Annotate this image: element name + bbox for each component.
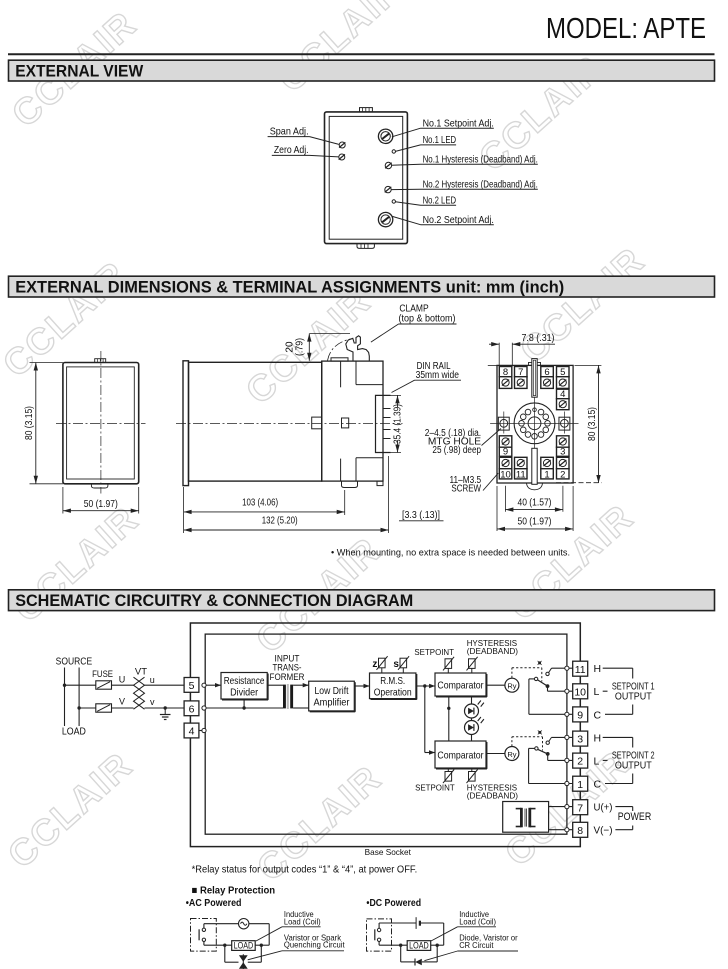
svg-text:U: U xyxy=(119,674,126,684)
svg-text:Load (Coil): Load (Coil) xyxy=(459,917,496,927)
svg-text:(.79): (.79) xyxy=(295,338,306,356)
svg-text:Base Socket: Base Socket xyxy=(365,847,412,857)
svg-text:Ry: Ry xyxy=(507,682,516,691)
svg-text:Comparator: Comparator xyxy=(437,679,484,691)
svg-text:11: 11 xyxy=(575,664,586,676)
svg-text:v: v xyxy=(150,697,155,707)
svg-text:EXTERNAL VIEW: EXTERNAL VIEW xyxy=(15,63,143,81)
svg-text:80 (3.15): 80 (3.15) xyxy=(23,406,35,440)
svg-text:•DC Powered: •DC Powered xyxy=(366,897,421,909)
svg-text:Amplifier: Amplifier xyxy=(314,697,350,709)
svg-text:35.4 (1.39): 35.4 (1.39) xyxy=(392,404,403,444)
svg-text:6: 6 xyxy=(189,703,195,715)
svg-text:1: 1 xyxy=(544,469,549,480)
svg-text:7: 7 xyxy=(577,802,583,814)
svg-text:8: 8 xyxy=(577,825,583,837)
svg-text:9: 9 xyxy=(577,710,583,722)
svg-text:Low Drift: Low Drift xyxy=(315,685,349,697)
svg-text:V(−): V(−) xyxy=(594,825,613,837)
svg-text:No.2 LED: No.2 LED xyxy=(423,194,457,206)
svg-text:Resistance: Resistance xyxy=(224,675,265,687)
svg-text:132 (5.20): 132 (5.20) xyxy=(262,515,298,527)
svg-text:Quenching Circuit: Quenching Circuit xyxy=(284,940,345,950)
svg-text:Ry: Ry xyxy=(507,750,516,759)
svg-text:Load (Coil): Load (Coil) xyxy=(284,917,321,927)
svg-text:L: L xyxy=(594,686,600,698)
svg-text:U(+): U(+) xyxy=(594,802,613,814)
svg-text:• When mounting, no extra spac: • When mounting, no extra space is neede… xyxy=(331,548,570,559)
svg-text:EXTERNAL DIMENSIONS & TERMINAL: EXTERNAL DIMENSIONS & TERMINAL ASSIGNMEN… xyxy=(15,279,564,297)
svg-text:LOAD: LOAD xyxy=(62,727,86,738)
svg-text:■ Relay Protection: ■ Relay Protection xyxy=(192,885,276,897)
svg-text:VT: VT xyxy=(135,667,147,678)
svg-text:CCLAIR: CCLAIR xyxy=(512,239,652,371)
svg-text:103 (4.06): 103 (4.06) xyxy=(242,496,278,508)
svg-text:SETPOINT: SETPOINT xyxy=(414,648,454,657)
svg-text:s: s xyxy=(393,659,399,670)
svg-text:(DEADBAND): (DEADBAND) xyxy=(467,647,519,656)
svg-text:SETPOINT: SETPOINT xyxy=(415,784,455,793)
svg-text:Zero Adj.: Zero Adj. xyxy=(274,144,309,156)
svg-text:35mm wide: 35mm wide xyxy=(416,370,460,381)
svg-text:H: H xyxy=(594,732,602,744)
svg-text:5: 5 xyxy=(189,680,195,692)
svg-text:Operation: Operation xyxy=(374,686,412,698)
svg-text:50 (1.97): 50 (1.97) xyxy=(518,515,552,527)
svg-text:2: 2 xyxy=(577,756,583,768)
svg-text:SOURCE: SOURCE xyxy=(56,657,93,668)
svg-text:FUSE: FUSE xyxy=(92,669,113,679)
svg-text:Comparator: Comparator xyxy=(437,749,484,761)
svg-text:CR Circuit: CR Circuit xyxy=(459,940,494,950)
svg-text:V: V xyxy=(119,697,125,707)
svg-text:R.M.S.: R.M.S. xyxy=(380,675,405,687)
svg-text:C: C xyxy=(594,779,602,791)
svg-text:CCLAIR: CCLAIR xyxy=(270,0,410,100)
svg-text:2: 2 xyxy=(560,469,565,480)
svg-text:1: 1 xyxy=(577,779,583,791)
svg-text:50 (1.97): 50 (1.97) xyxy=(84,498,118,510)
svg-text:No.2 Setpoint Adj.: No.2 Setpoint Adj. xyxy=(423,214,494,226)
svg-text:80 (3.15): 80 (3.15) xyxy=(586,407,598,441)
svg-text:C: C xyxy=(594,709,602,721)
svg-text:OUTPUT: OUTPUT xyxy=(615,759,652,771)
svg-text:(DEADBAND): (DEADBAND) xyxy=(467,791,519,800)
svg-text:Span Adj.: Span Adj. xyxy=(270,125,309,137)
svg-text:7.8 (.31): 7.8 (.31) xyxy=(522,332,555,344)
svg-text:*Relay status for output codes: *Relay status for output codes “1” & “4”… xyxy=(192,864,418,875)
svg-text:LOAD: LOAD xyxy=(234,941,254,951)
svg-text:u: u xyxy=(150,675,155,685)
svg-text:No.1 LED: No.1 LED xyxy=(423,134,457,146)
svg-text:SCREW: SCREW xyxy=(451,484,481,495)
svg-text:40 (1.57): 40 (1.57) xyxy=(518,496,552,508)
svg-text:3: 3 xyxy=(560,447,565,458)
svg-text:z: z xyxy=(372,659,377,670)
svg-text:OUTPUT: OUTPUT xyxy=(615,690,652,702)
svg-text:POWER: POWER xyxy=(618,811,652,823)
svg-text:11: 11 xyxy=(516,469,526,480)
svg-text:3: 3 xyxy=(577,734,583,746)
svg-text:10: 10 xyxy=(500,469,511,480)
svg-text:4: 4 xyxy=(189,726,195,738)
svg-text:CCLAIR: CCLAIR xyxy=(0,744,140,876)
svg-text:No.1 Hysteresis (Deadband) Adj: No.1 Hysteresis (Deadband) Adj. xyxy=(423,153,538,165)
svg-text:FORMER: FORMER xyxy=(270,672,305,682)
svg-text:H: H xyxy=(594,663,602,675)
svg-text:LOAD: LOAD xyxy=(409,941,429,951)
svg-text:25 (.98) deep: 25 (.98) deep xyxy=(432,445,481,456)
svg-text:MODEL: APTE: MODEL: APTE xyxy=(546,13,706,45)
svg-text:No.1 Setpoint Adj.: No.1 Setpoint Adj. xyxy=(423,117,494,129)
svg-text:•AC Powered: •AC Powered xyxy=(186,897,242,909)
svg-text:SCHEMATIC CIRCUITRY & CONNECTI: SCHEMATIC CIRCUITRY & CONNECTION DIAGRAM xyxy=(15,592,413,610)
svg-text:9: 9 xyxy=(503,447,508,458)
svg-text:(top & bottom): (top & bottom) xyxy=(399,314,456,325)
svg-text:No.2 Hysteresis (Deadband) Adj: No.2 Hysteresis (Deadband) Adj. xyxy=(423,179,538,191)
svg-text:[3.3 (.13)]: [3.3 (.13)] xyxy=(402,510,440,521)
svg-text:Divider: Divider xyxy=(230,686,258,698)
svg-text:10: 10 xyxy=(574,686,586,698)
svg-text:CCLAIR: CCLAIR xyxy=(0,253,135,385)
svg-text:L: L xyxy=(594,755,600,767)
